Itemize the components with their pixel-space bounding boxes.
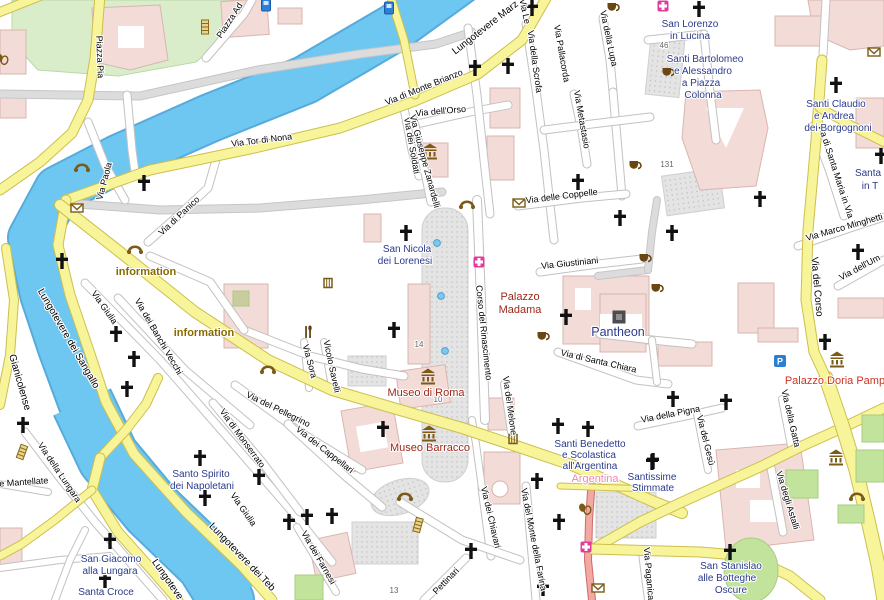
building: [838, 298, 884, 318]
church-label: Santi Benedetto: [554, 439, 626, 450]
basket-icon: [324, 279, 332, 288]
pharmacy-icon: [581, 542, 592, 553]
museum-icon: [829, 450, 843, 466]
map-canvas[interactable]: P Piazza PiaPiazza AdLungotevere MarzVia…: [0, 0, 884, 600]
church-icon: [693, 1, 705, 17]
fuel-icon: [262, 0, 271, 11]
street-label: Corso del Rinascimento: [474, 285, 494, 381]
road-white: [613, 92, 622, 196]
road-gray: [598, 270, 648, 276]
post-icon: [71, 204, 83, 212]
palazzo-label: Madama: [499, 304, 543, 316]
street-label: Via della Lupa: [598, 10, 620, 68]
housenumber-label: 46: [660, 41, 669, 50]
building: [408, 284, 430, 364]
monument-icon: [413, 517, 423, 532]
church-label: dei Lorenesi: [378, 256, 432, 267]
museum-label: Museo di Roma: [387, 387, 465, 399]
restaurant-icon: [305, 325, 312, 338]
pharmacy-icon: [474, 257, 485, 268]
street-label: Piazza Pia: [94, 35, 105, 78]
monument-icon: [202, 20, 209, 34]
building: [758, 328, 798, 342]
street-label: Gianicolense: [6, 353, 33, 412]
svg-text:P: P: [777, 356, 783, 366]
pantheon-icon: [613, 311, 626, 324]
church-label: in T: [862, 181, 879, 192]
museum-icon: [830, 352, 844, 368]
plaza-area: [352, 522, 418, 564]
church-label: Santi Bartolomeo: [667, 54, 744, 65]
cafe-icon: [538, 332, 550, 340]
phone-icon: [459, 202, 475, 209]
church-icon: [646, 454, 658, 470]
fountain-icon: [434, 240, 441, 247]
green-area: [233, 291, 249, 306]
museum-label: Museo Barracco: [390, 442, 470, 454]
church-label: all'Argentina: [563, 461, 618, 472]
post-icon: [513, 199, 525, 207]
church-label: dei Borgognoni: [804, 123, 871, 134]
street-label: Via Giulia: [228, 491, 258, 528]
church-icon: [852, 244, 864, 260]
church-icon: [666, 225, 678, 241]
street-label: Via del Pellegrino: [245, 389, 312, 429]
information-label: information: [116, 266, 177, 278]
church-icon: [400, 225, 412, 241]
church-icon: [388, 322, 400, 338]
church-icon: [128, 351, 140, 367]
church-label: alla Lungara: [82, 566, 137, 577]
church-icon: [194, 450, 206, 466]
street-label: Via di Panico: [156, 194, 201, 237]
post-icon: [592, 584, 604, 592]
fuel-icon: [385, 2, 394, 14]
church-label: Santa Croce: [78, 587, 134, 598]
green-area: [838, 505, 864, 523]
palazzo-label: Palazzo Doria Pamph: [785, 375, 884, 387]
church-icon: [531, 473, 543, 489]
church-icon: [199, 490, 211, 506]
building-courtyard: [492, 481, 508, 497]
monument-icon: [16, 444, 27, 460]
church-icon: [121, 381, 133, 397]
housenumber-label: 13: [390, 586, 399, 595]
church-icon: [819, 334, 831, 350]
church-label: Oscure: [715, 585, 748, 596]
church-icon: [110, 326, 122, 342]
green-area: [295, 575, 323, 600]
street-label: le Mantellate: [0, 475, 49, 489]
building: [0, 30, 26, 74]
church-label: San Nicola: [383, 244, 432, 255]
fountain-icon: [442, 348, 449, 355]
church-label: Stimmate: [632, 483, 675, 494]
building: [775, 16, 823, 46]
church-label: San Lorenzo: [662, 19, 719, 30]
street-label: Via Pallacorda: [552, 24, 572, 83]
church-label: Santi Claudio: [806, 99, 866, 110]
church-label: Santo Spirito: [172, 469, 230, 480]
green-area: [856, 450, 884, 482]
building: [738, 283, 774, 333]
church-icon: [552, 418, 564, 434]
road-pink: [588, 478, 592, 600]
green-area: [862, 415, 884, 442]
church-icon: [830, 77, 842, 93]
street-label: Pettinari: [431, 566, 461, 597]
pharmacy-icon: [658, 1, 669, 12]
church-label: e Scolastica: [562, 450, 616, 461]
street-label: Via Giulia: [89, 289, 119, 326]
housenumber-label: 14: [415, 340, 424, 349]
area-label: Argentina: [571, 473, 619, 485]
building: [487, 136, 514, 180]
building-courtyard: [575, 288, 591, 310]
cafe-icon: [652, 284, 664, 292]
building-courtyard: [118, 26, 144, 48]
church-label: a Piazza: [682, 78, 721, 89]
church-icon: [754, 191, 766, 207]
church-label: Santa: [855, 168, 882, 179]
cafe-icon: [630, 161, 642, 169]
road-white: [823, 0, 826, 55]
street-label: Via Le: [517, 0, 532, 25]
poi-label: Pantheon: [591, 325, 645, 339]
building: [278, 8, 302, 24]
church-label: Santissime: [628, 472, 677, 483]
palazzo-label: Palazzo: [500, 291, 539, 303]
church-icon: [875, 148, 884, 164]
post-icon: [868, 48, 880, 56]
road-yellow: [0, 248, 14, 405]
church-label: San Stanislao: [700, 561, 762, 572]
church-label: San Giacomo: [81, 554, 142, 565]
phone-icon: [260, 367, 276, 374]
map-viewport[interactable]: P Piazza PiaPiazza AdLungotevere MarzVia…: [0, 0, 884, 600]
church-label: in Lucina: [670, 31, 710, 42]
housenumber-label: 131: [660, 160, 674, 169]
parking-icon: P: [774, 355, 786, 367]
building: [364, 214, 381, 242]
road-white: [468, 28, 490, 214]
church-icon: [582, 421, 594, 437]
church-label: Colonna: [684, 90, 722, 101]
church-icon: [614, 210, 626, 226]
information-label: information: [174, 327, 235, 339]
church-label: dei Napoletani: [170, 481, 234, 492]
church-icon: [326, 508, 338, 524]
church-icon: [667, 391, 679, 407]
church-icon: [553, 514, 565, 530]
cafe-icon: [608, 3, 620, 11]
church-label: e Alessandro: [674, 66, 732, 77]
church-label: e Andrea: [814, 111, 854, 122]
church-label: alle Botteghe: [698, 573, 757, 584]
phone-icon: [127, 247, 143, 254]
fountain-icon: [438, 293, 445, 300]
